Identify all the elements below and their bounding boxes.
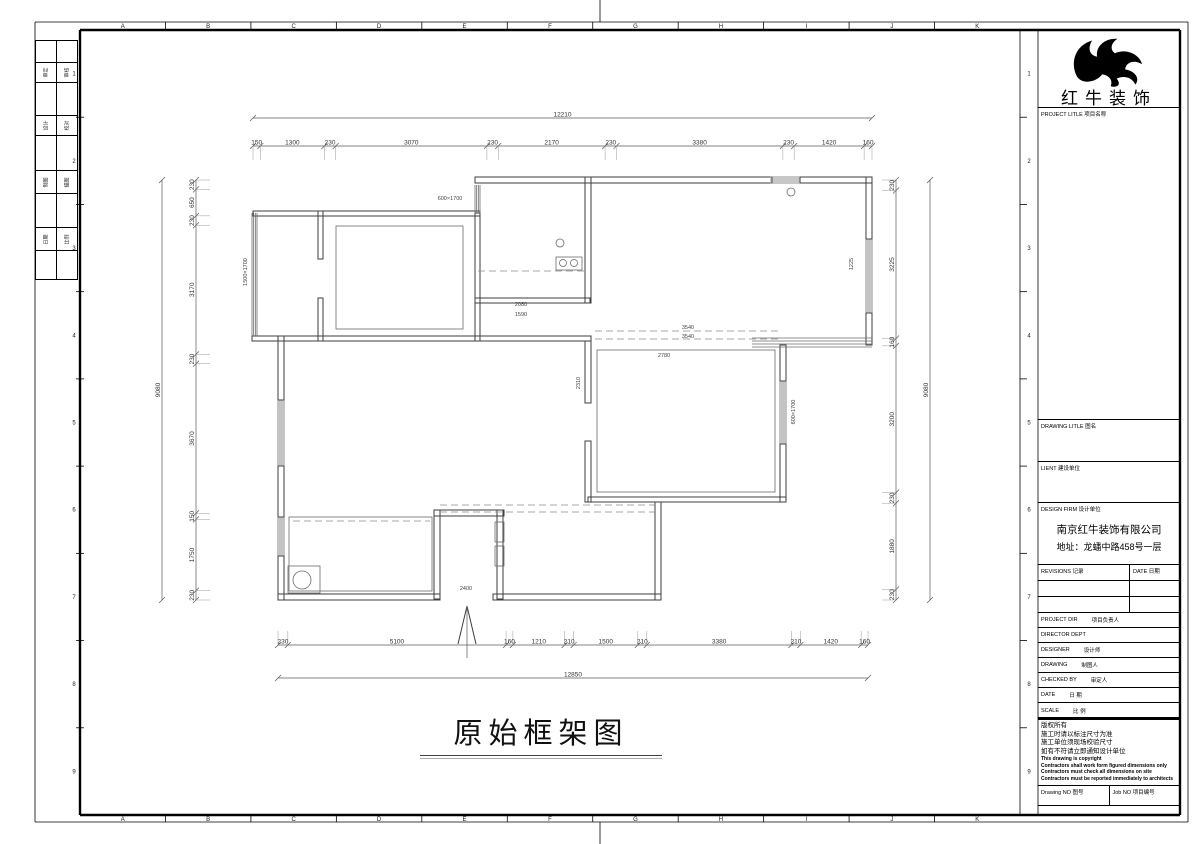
svg-text:2170: 2170 [544, 140, 559, 147]
signature-cell: 审定 [36, 63, 57, 82]
svg-text:G: G [633, 24, 638, 30]
svg-text:160: 160 [863, 140, 874, 147]
svg-text:5100: 5100 [390, 639, 405, 646]
signature-row: 设计校对 [36, 116, 77, 136]
svg-text:2400: 2400 [460, 586, 472, 592]
staff-row: CHECKED BY审定人 [1038, 673, 1180, 688]
signature-row: 日期比例 [36, 228, 77, 251]
svg-text:230: 230 [189, 215, 196, 226]
svg-text:230: 230 [889, 492, 896, 503]
revisions-table: REVISIONS 记录 DATE 日期 [1038, 565, 1180, 613]
svg-text:210: 210 [637, 639, 648, 646]
svg-text:230: 230 [189, 590, 196, 601]
svg-text:230: 230 [487, 140, 498, 147]
svg-text:3200: 3200 [889, 412, 896, 427]
svg-text:B: B [206, 817, 210, 823]
copyright-notes: 版权所有施工时请以标注尺寸为准施工单位须现场校验尺寸如有不符请立即通知设计单位T… [1038, 718, 1180, 786]
revisions-empty-row [1038, 581, 1180, 597]
signature-cell [36, 251, 57, 279]
staff-row: SCALE比 例 [1038, 703, 1180, 718]
date-column-label: DATE 日期 [1130, 565, 1180, 580]
svg-text:4: 4 [72, 333, 76, 339]
note-line: 版权所有 [1041, 722, 1177, 731]
signature-row: 制图描图 [36, 171, 77, 194]
signature-cell: 设计 [36, 116, 57, 135]
svg-text:2080: 2080 [515, 302, 527, 308]
svg-text:9080: 9080 [923, 382, 930, 397]
svg-text:K: K [975, 817, 979, 823]
svg-text:3670: 3670 [189, 431, 196, 446]
svg-text:D: D [377, 817, 382, 823]
svg-text:210: 210 [790, 639, 801, 646]
job-no-label: Job NO 项目编号 [1109, 786, 1181, 805]
svg-text:230: 230 [277, 639, 288, 646]
svg-text:1590: 1590 [515, 312, 527, 318]
project-title-section: PROJECT LITLE 项目名称 [1038, 108, 1180, 420]
staff-row: DATE日 期 [1038, 688, 1180, 703]
svg-text:230: 230 [605, 140, 616, 147]
svg-text:G: G [633, 817, 638, 823]
walls-layer [252, 177, 872, 600]
signature-row [36, 83, 77, 116]
fixtures-layer [288, 188, 795, 593]
note-line: Contractors must check all dimensions on… [1041, 769, 1177, 776]
revisions-label: REVISIONS 记录 [1038, 565, 1130, 580]
signature-cell [36, 41, 57, 62]
signature-row [36, 251, 77, 279]
svg-text:9: 9 [1027, 769, 1031, 775]
brand-section: 红牛装饰 [1038, 30, 1180, 108]
dimensions-layer: 1221015013002303070230217023033802301420… [155, 112, 933, 682]
svg-text:J: J [890, 24, 893, 30]
svg-text:J: J [890, 817, 893, 823]
svg-text:230: 230 [189, 353, 196, 364]
drawing-title-label: DRAWING LITLE 图名 [1038, 420, 1180, 432]
svg-text:E: E [463, 817, 467, 823]
svg-text:2310: 2310 [576, 377, 582, 389]
title-underline-2 [420, 758, 662, 759]
svg-text:8: 8 [1027, 682, 1031, 688]
client-label: LIENT 建设单位 [1038, 462, 1180, 474]
annotations-layer: 2400278035403540600×1700600×170012252080… [243, 196, 855, 592]
svg-text:230: 230 [189, 179, 196, 190]
firm-address: 地址：龙蟠中路458号一层 [1038, 540, 1180, 553]
firm-name: 南京红牛装饰有限公司 [1038, 522, 1180, 537]
staff-row: DESIGNER设计师 [1038, 643, 1180, 658]
signature-cell [57, 194, 77, 227]
svg-text:F: F [548, 817, 552, 823]
revisions-empty-row [1038, 597, 1180, 613]
svg-text:6: 6 [1027, 508, 1031, 514]
note-line: This drawing is copyright [1041, 756, 1177, 763]
svg-text:A: A [121, 24, 125, 30]
svg-text:E: E [463, 24, 467, 30]
signature-cell [57, 136, 77, 170]
brand-name: 红牛装饰 [1038, 84, 1180, 108]
svg-text:A: A [121, 817, 125, 823]
svg-text:1500: 1500 [598, 639, 613, 646]
svg-text:230: 230 [889, 589, 896, 600]
signature-cell: 校对 [57, 116, 77, 135]
svg-text:160: 160 [889, 336, 896, 347]
svg-text:1420: 1420 [822, 140, 837, 147]
entry-arrow [458, 606, 476, 658]
svg-text:4: 4 [1027, 333, 1031, 339]
svg-text:F: F [548, 24, 552, 30]
svg-text:9: 9 [72, 769, 76, 775]
staff-row: DIRECTOR DEPT [1038, 628, 1180, 643]
svg-text:5: 5 [72, 421, 76, 427]
svg-text:C: C [291, 24, 296, 30]
svg-text:1: 1 [1027, 72, 1031, 78]
project-title-label: PROJECT LITLE 项目名称 [1038, 108, 1180, 120]
signature-column: 审定审核设计校对制图描图日期比例 [35, 40, 78, 280]
svg-text:150: 150 [189, 510, 196, 521]
svg-text:D: D [377, 24, 382, 30]
svg-text:1210: 1210 [532, 639, 547, 646]
drawing-number-row: Drawing NO 图号 Job NO 项目编号 [1038, 786, 1180, 806]
svg-text:3380: 3380 [692, 140, 707, 147]
svg-text:H: H [719, 24, 723, 30]
svg-text:3540: 3540 [682, 334, 694, 340]
signature-row [36, 194, 77, 228]
drawing-title-text: 原始框架图 [453, 716, 628, 750]
svg-text:H: H [719, 817, 723, 823]
title-underline [420, 755, 662, 756]
svg-text:3: 3 [1027, 246, 1031, 252]
svg-text:1750: 1750 [189, 547, 196, 562]
note-line: 施工时请以标注尺寸为准 [1041, 731, 1177, 740]
svg-text:1225: 1225 [849, 258, 855, 270]
signature-cell [36, 83, 57, 115]
svg-text:3170: 3170 [189, 282, 196, 297]
svg-text:230: 230 [783, 140, 794, 147]
svg-text:K: K [975, 24, 979, 30]
signature-cell [57, 41, 77, 62]
svg-text:160: 160 [859, 639, 870, 646]
signature-row: 审定审核 [36, 63, 77, 83]
svg-text:3540: 3540 [682, 325, 694, 331]
signature-cell: 比例 [57, 228, 77, 250]
svg-text:5: 5 [1027, 421, 1031, 427]
svg-text:7: 7 [1027, 595, 1031, 601]
svg-text:12850: 12850 [564, 672, 582, 679]
svg-text:9080: 9080 [155, 382, 162, 397]
windows-layer [252, 177, 872, 556]
svg-text:12210: 12210 [553, 112, 571, 119]
title-block: 红牛装饰 PROJECT LITLE 项目名称 DRAWING LITLE 图名… [1038, 30, 1180, 815]
svg-text:C: C [291, 817, 296, 823]
drawing-no-label: Drawing NO 图号 [1038, 786, 1109, 805]
signature-cell [36, 136, 57, 170]
svg-text:230: 230 [325, 140, 336, 147]
note-line: 如有不符请立即通知设计单位 [1041, 748, 1177, 757]
staff-row: DRAWING制图人 [1038, 658, 1180, 673]
design-firm-section: DESIGN FIRM 设计单位 南京红牛装饰有限公司 地址：龙蟠中路458号一… [1038, 503, 1180, 565]
signature-cell: 制图 [36, 171, 57, 193]
staff-row: PROJECT DIR项目负责人 [1038, 613, 1180, 628]
svg-text:600×1700: 600×1700 [791, 400, 797, 425]
svg-text:6: 6 [72, 508, 76, 514]
svg-text:210: 210 [564, 639, 575, 646]
svg-text:600×1700: 600×1700 [438, 196, 463, 202]
red-bull-logo-icon [1057, 32, 1161, 88]
svg-text:1420: 1420 [824, 639, 839, 646]
note-line: 施工单位须现场校验尺寸 [1041, 739, 1177, 748]
signature-cell: 日期 [36, 228, 57, 250]
svg-text:1880: 1880 [889, 539, 896, 554]
svg-text:650: 650 [189, 197, 196, 208]
staff-rows: PROJECT DIR项目负责人DIRECTOR DEPTDESIGNER设计师… [1038, 613, 1180, 718]
svg-text:160: 160 [504, 639, 515, 646]
svg-text:7: 7 [72, 595, 76, 601]
svg-text:3070: 3070 [404, 140, 419, 147]
svg-text:230: 230 [889, 179, 896, 190]
note-line: Contractors must be reported immediately… [1041, 776, 1177, 783]
signature-cell: 审核 [57, 63, 77, 82]
svg-text:1500×1700: 1500×1700 [243, 258, 249, 286]
client-section: LIENT 建设单位 [1038, 462, 1180, 503]
svg-text:B: B [206, 24, 210, 30]
drawing-title: 原始框架图 [420, 710, 662, 759]
drawing-sheet: AABBCCDDEEFFGGHHIIJJKK112233445566778899… [0, 0, 1200, 844]
note-line: Contractors shall work form figured dime… [1041, 763, 1177, 770]
signature-row [36, 136, 77, 171]
svg-text:8: 8 [72, 682, 76, 688]
dashed-layer [293, 271, 778, 521]
signature-cell: 描图 [57, 171, 77, 193]
svg-text:1300: 1300 [285, 140, 300, 147]
svg-text:3225: 3225 [889, 257, 896, 272]
signature-row [36, 41, 77, 63]
svg-text:2780: 2780 [658, 353, 670, 359]
svg-text:150: 150 [251, 140, 262, 147]
svg-text:3380: 3380 [712, 639, 727, 646]
signature-cell [57, 83, 77, 115]
signature-cell [57, 251, 77, 279]
svg-text:2: 2 [1027, 159, 1031, 165]
signature-cell [36, 194, 57, 227]
drawing-title-section: DRAWING LITLE 图名 [1038, 420, 1180, 462]
design-firm-label: DESIGN FIRM 设计单位 [1038, 503, 1180, 515]
